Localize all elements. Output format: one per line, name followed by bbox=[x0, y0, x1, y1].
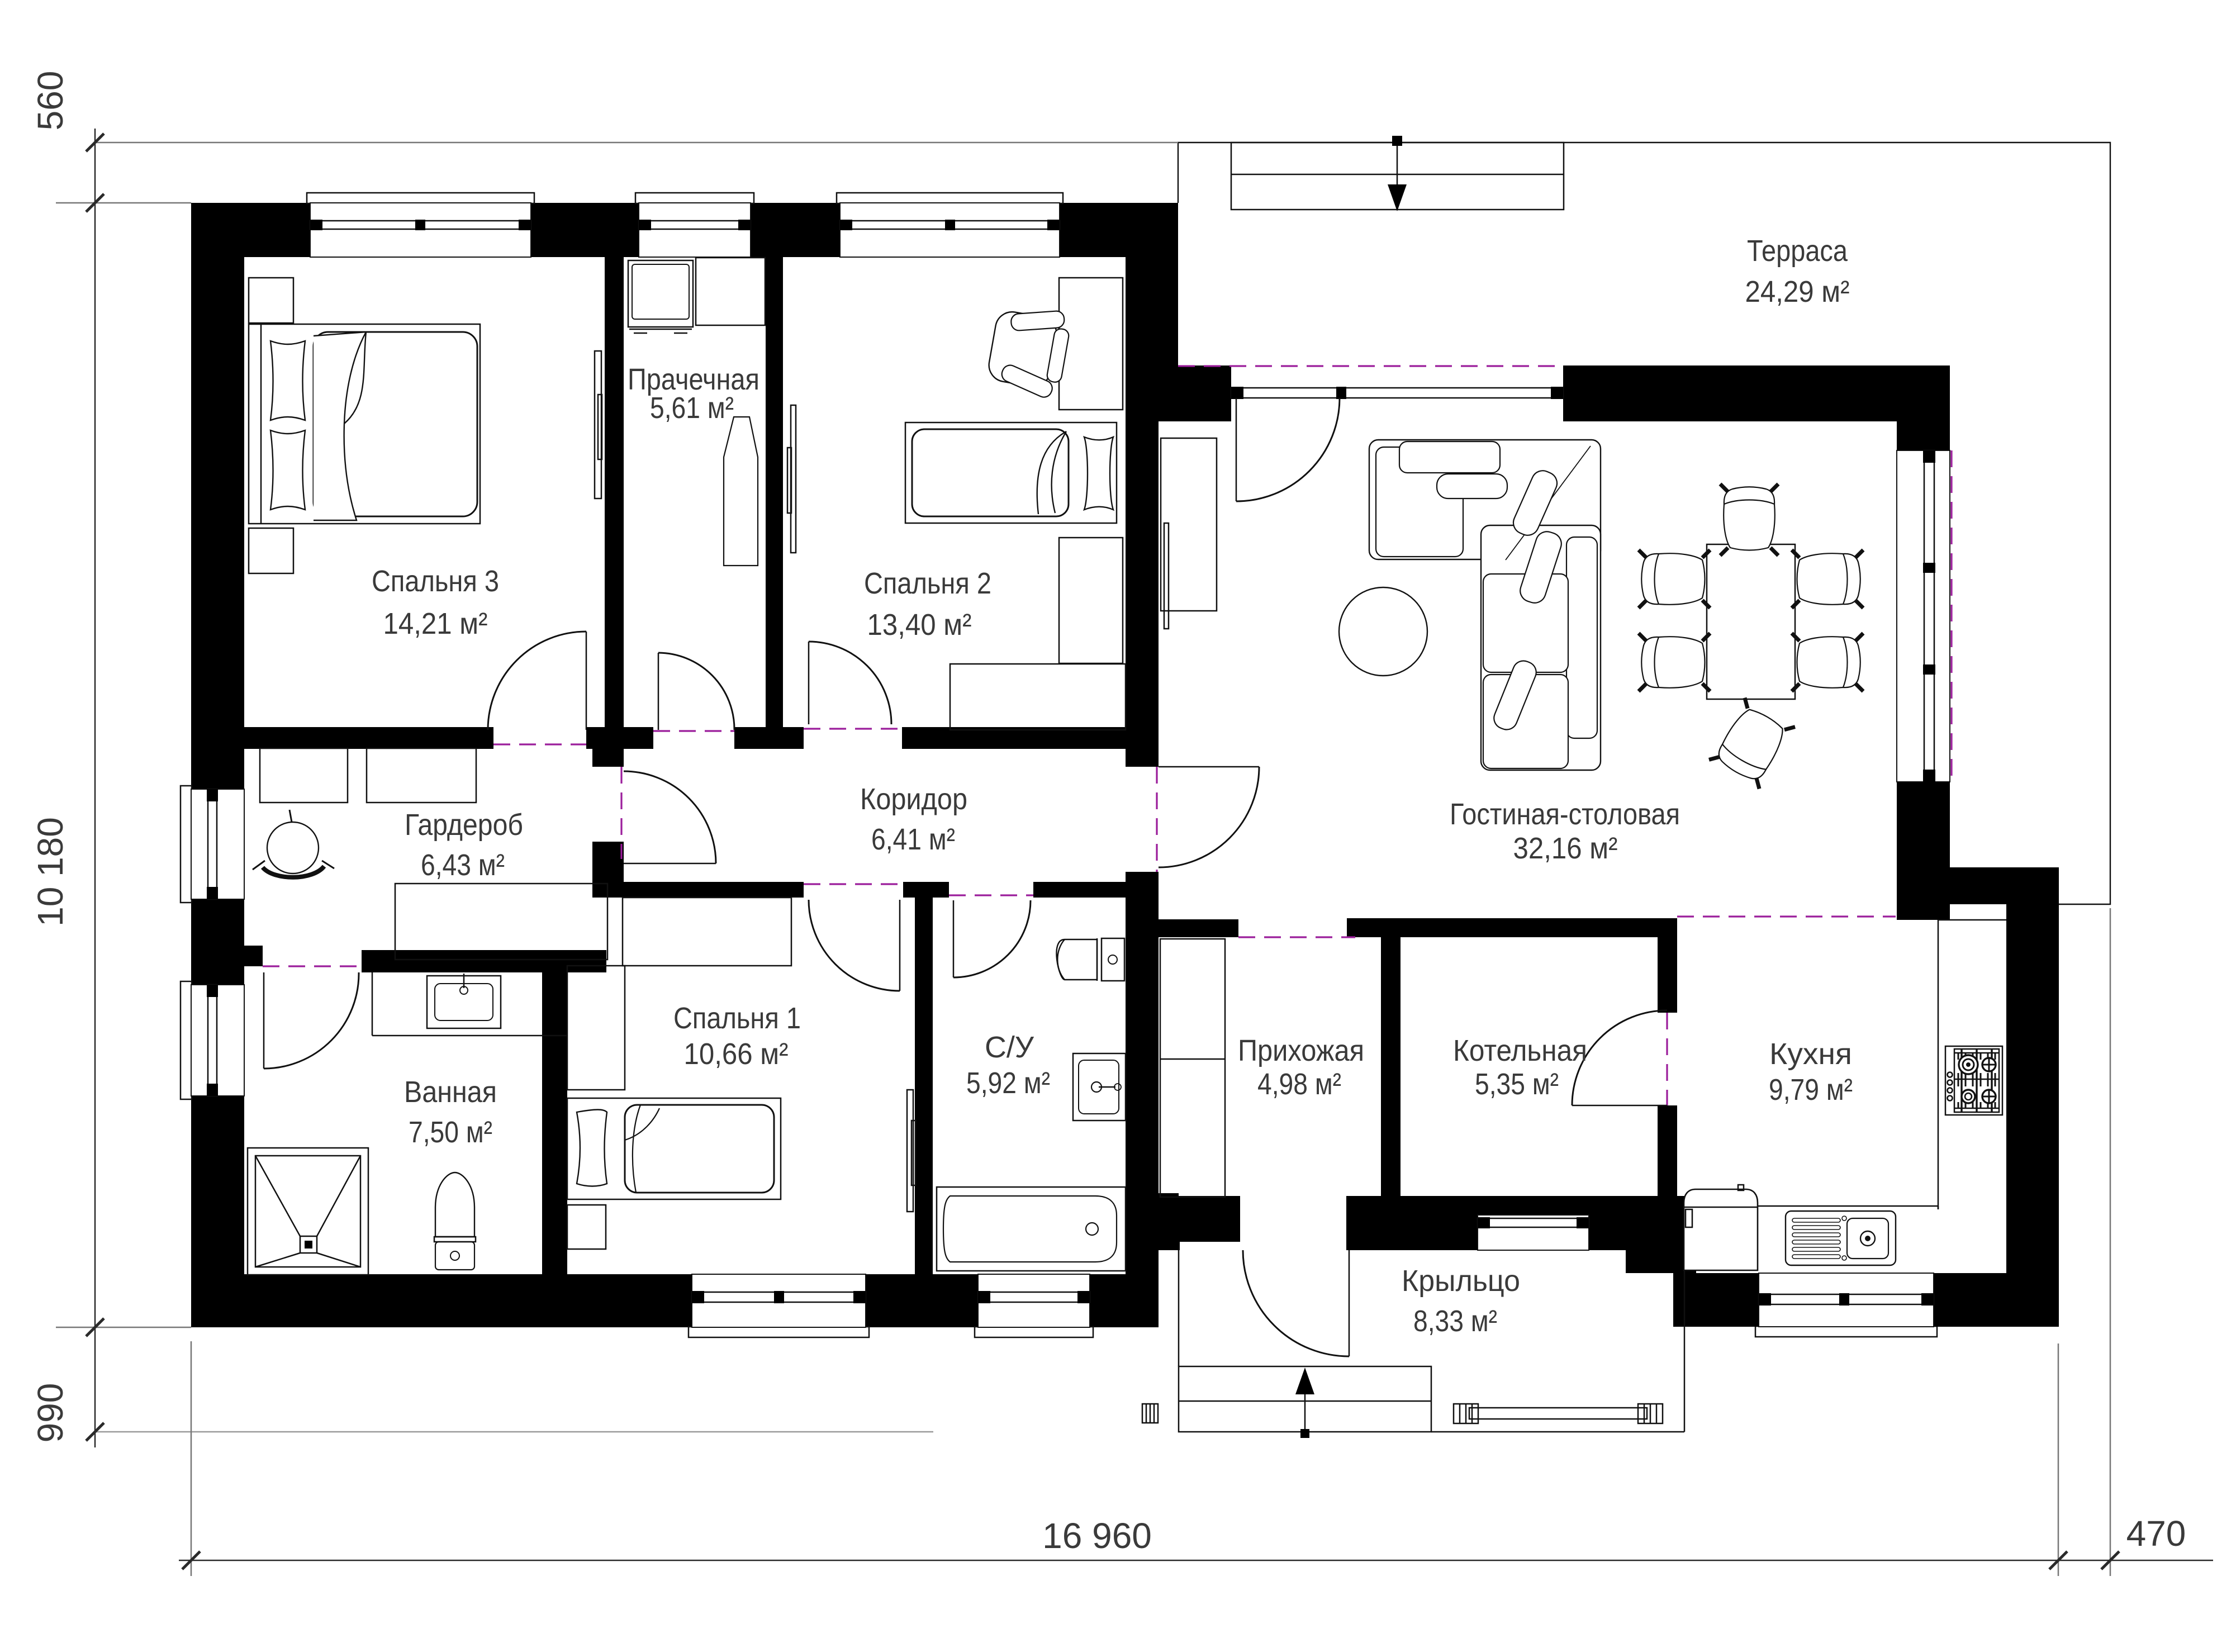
svg-text:Спальня 1: Спальня 1 bbox=[673, 1001, 801, 1035]
svg-text:Котельная: Котельная bbox=[1453, 1034, 1587, 1067]
svg-text:Гардероб: Гардероб bbox=[405, 808, 523, 842]
svg-text:6,43 м²: 6,43 м² bbox=[421, 848, 505, 882]
svg-text:Кухня: Кухня bbox=[1769, 1037, 1852, 1071]
svg-text:24,29 м²: 24,29 м² bbox=[1745, 275, 1850, 308]
svg-text:470: 470 bbox=[2126, 1513, 2186, 1554]
svg-text:10 180: 10 180 bbox=[30, 817, 70, 927]
svg-text:Спальня 2: Спальня 2 bbox=[864, 567, 991, 600]
svg-text:14,21 м²: 14,21 м² bbox=[383, 607, 488, 640]
svg-text:5,61 м²: 5,61 м² bbox=[650, 391, 734, 425]
svg-text:Гостиная-столовая: Гостиная-столовая bbox=[1450, 797, 1680, 831]
svg-text:Коридор: Коридор bbox=[860, 782, 967, 816]
svg-text:990: 990 bbox=[30, 1383, 70, 1443]
svg-text:Ванная: Ванная bbox=[404, 1075, 497, 1109]
svg-text:9,79 м²: 9,79 м² bbox=[1769, 1073, 1853, 1107]
svg-text:5,35 м²: 5,35 м² bbox=[1475, 1067, 1559, 1101]
svg-text:560: 560 bbox=[30, 71, 70, 131]
svg-text:Спальня 3: Спальня 3 bbox=[372, 564, 499, 598]
svg-text:13,40 м²: 13,40 м² bbox=[867, 608, 972, 642]
svg-text:Терраса: Терраса bbox=[1747, 234, 1848, 268]
svg-text:С/У: С/У bbox=[985, 1031, 1034, 1064]
svg-text:8,33 м²: 8,33 м² bbox=[1413, 1304, 1497, 1338]
svg-text:10,66 м²: 10,66 м² bbox=[684, 1037, 789, 1071]
svg-text:32,16 м²: 32,16 м² bbox=[1513, 832, 1618, 865]
svg-text:4,98 м²: 4,98 м² bbox=[1257, 1067, 1341, 1101]
svg-text:6,41 м²: 6,41 м² bbox=[871, 823, 955, 856]
svg-text:Крыльцо: Крыльцо bbox=[1402, 1264, 1520, 1298]
svg-text:16 960: 16 960 bbox=[1042, 1516, 1152, 1556]
svg-text:7,50 м²: 7,50 м² bbox=[409, 1115, 492, 1149]
svg-text:5,92 м²: 5,92 м² bbox=[966, 1066, 1050, 1100]
svg-text:Прихожая: Прихожая bbox=[1238, 1034, 1364, 1067]
